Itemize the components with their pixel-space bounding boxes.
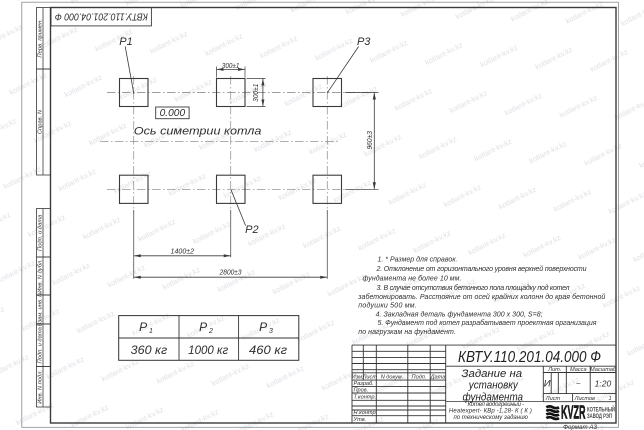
svg-text:фундамента не более 10 мм.: фундамента не более 10 мм. [363,275,462,283]
svg-text:460 кг: 460 кг [249,345,287,357]
svg-text:Ось симетрии котла: Ось симетрии котла [134,126,262,138]
svg-text:360 кг: 360 кг [131,345,168,357]
svg-text:Котел водогрейный -: Котел водогрейный - [467,401,524,408]
svg-text:Дата: Дата [430,374,446,380]
svg-text:300±1: 300±1 [222,61,240,70]
svg-text:Heatexpert- КВр -1,28- К ( К ): Heatexpert- КВр -1,28- К ( К ) [449,409,532,415]
svg-text:2. Отклонение от горизонтально: 2. Отклонение от горизонтального уровня … [376,265,587,273]
svg-text:Н.контр.: Н.контр. [354,410,378,416]
svg-text:Формат А3: Формат А3 [563,424,597,430]
svg-text:Разраб.: Разраб. [354,381,374,387]
svg-text:Инв. N дубл.: Инв. N дубл. [38,259,44,293]
svg-text:3. В случае отсутствия бетонно: 3. В случае отсутствия бетонного пола пл… [377,284,570,292]
svg-text:300±1: 300±1 [251,84,260,102]
svg-text:Лист: Лист [545,396,561,402]
svg-text:KVZR: KVZR [561,402,586,423]
svg-text:2800±3: 2800±3 [219,268,243,277]
svg-text:КВТУ.110.201.04.000 Ф: КВТУ.110.201.04.000 Ф [458,349,601,366]
svg-text:по техническому заданию: по техническому заданию [453,415,528,421]
svg-text:5. Фундамент под котел разраба: 5. Фундамент под котел разрабатывает про… [378,319,597,327]
svg-text:подушки 500 мм.: подушки 500 мм. [358,301,417,309]
svg-text:Инв. N подл.: Инв. N подл. [38,370,44,404]
svg-text:1000 кг: 1000 кг [188,345,228,357]
svg-text:Масса: Масса [570,367,587,373]
svg-text:960±3: 960±3 [365,130,374,149]
svg-text:4. Закладная деталь фундамента: 4. Закладная деталь фундамента 300 х 300… [376,311,543,319]
svg-text:–: – [575,379,581,388]
svg-text:Утв.: Утв. [353,417,367,423]
svg-text:Задание на: Задание на [462,368,523,380]
svg-text:Лист: Лист [362,374,378,380]
svg-text:Р1: Р1 [119,36,132,48]
svg-text:1. * Размер для справок.: 1. * Размер для справок. [378,255,458,263]
svg-text:ЗАВОД РЭП: ЗАВОД РЭП [587,413,612,420]
svg-text:0.000: 0.000 [160,107,186,119]
svg-text:Подп. и дата: Подп. и дата [38,214,44,251]
svg-text:Подп.: Подп. [412,374,427,380]
svg-text:Лит.: Лит. [547,367,561,373]
svg-text:Подп. и дата: Подп. и дата [38,326,44,363]
svg-text:Р2: Р2 [245,224,258,236]
svg-text:N докум.: N докум. [381,374,404,380]
svg-text:И: И [544,379,551,390]
svg-text:1: 1 [608,396,611,402]
svg-text:1400±2: 1400±2 [171,246,195,255]
svg-text:Взам. инв. N: Взам. инв. N [38,292,44,327]
svg-text:1:20: 1:20 [595,378,612,388]
svg-text:Масштаб: Масштаб [590,367,617,373]
svg-text:забетонировать. Расстояние от: забетонировать. Расстояние от осей крайн… [357,293,605,301]
svg-text:по нагрузкам на фундамент.: по нагрузкам на фундамент. [358,328,456,336]
svg-text:Справ. N: Справ. N [38,109,44,134]
svg-text:Пров.: Пров. [354,388,369,394]
svg-text:установку: установку [468,380,519,392]
svg-text:Т.контр.: Т.контр. [354,395,377,401]
svg-text:Р3: Р3 [357,36,371,48]
svg-text:Перв. примен.: Перв. примен. [38,19,44,58]
svg-text:КВТУ.110.201.04.000 Ф: КВТУ.110.201.04.000 Ф [55,10,148,21]
